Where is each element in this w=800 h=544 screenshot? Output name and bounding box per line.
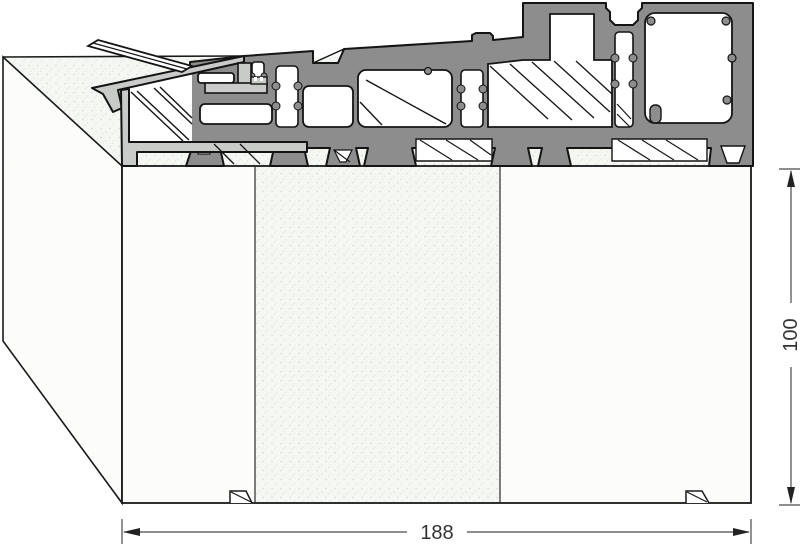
- clip-notch: [254, 77, 257, 81]
- clip-notch: [260, 77, 263, 81]
- dim-arrow-up: [787, 170, 795, 187]
- dimension-height: 100: [779, 169, 800, 505]
- chamber-b-dimple: [425, 68, 432, 75]
- block-front-panel-left: [122, 166, 255, 503]
- base-hatch-zone-right: [612, 139, 707, 161]
- chamber-d-hook: [650, 105, 661, 123]
- chamber-a: [303, 86, 353, 127]
- chamber-slot: [200, 104, 272, 124]
- end-cap-tab: [238, 63, 251, 84]
- chamber-hatched-center: [488, 14, 612, 127]
- block-front-panel-insulation: [255, 166, 500, 503]
- dimension-width-label: 188: [420, 522, 453, 544]
- chamber-b: [358, 70, 452, 127]
- base-hatch-zone-left: [416, 139, 492, 161]
- dim-arrow-right: [733, 528, 750, 536]
- block-front-panel-right: [500, 166, 751, 503]
- end-cap-clip: [251, 77, 267, 84]
- dimension-height-label: 100: [780, 318, 800, 351]
- technical-drawing: 188 100: [0, 0, 800, 544]
- dim-arrow-down: [787, 487, 795, 504]
- dimension-width: 188: [122, 519, 751, 544]
- chamber-small-left: [198, 73, 234, 83]
- dim-arrow-left: [123, 528, 140, 536]
